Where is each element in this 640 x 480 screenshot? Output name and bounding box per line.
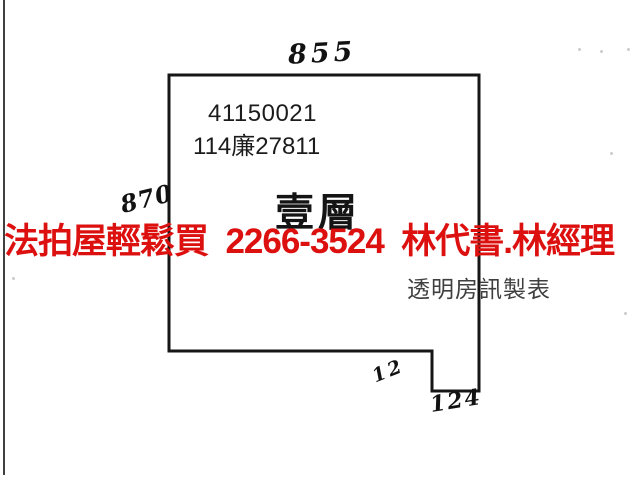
- producer-credit: 透明房訊製表: [407, 270, 551, 304]
- scan-speck: [578, 48, 581, 51]
- scan-speck: [627, 48, 630, 51]
- measurement-top-width: 855: [287, 36, 357, 71]
- scan-speck: [610, 152, 613, 155]
- floorplan-scan-canvas: 855 870 41150021 114廉27811 壹層 法拍屋輕鬆買 226…: [0, 0, 640, 480]
- scan-speck: [12, 277, 15, 280]
- case-number: 114廉27811: [193, 126, 320, 161]
- scan-speck: [624, 312, 627, 315]
- ad-overlay-text: 法拍屋輕鬆買 2266-3524 林代書.林經理: [4, 213, 614, 264]
- parcel-number: 41150021: [208, 100, 317, 128]
- scan-speck: [600, 50, 603, 53]
